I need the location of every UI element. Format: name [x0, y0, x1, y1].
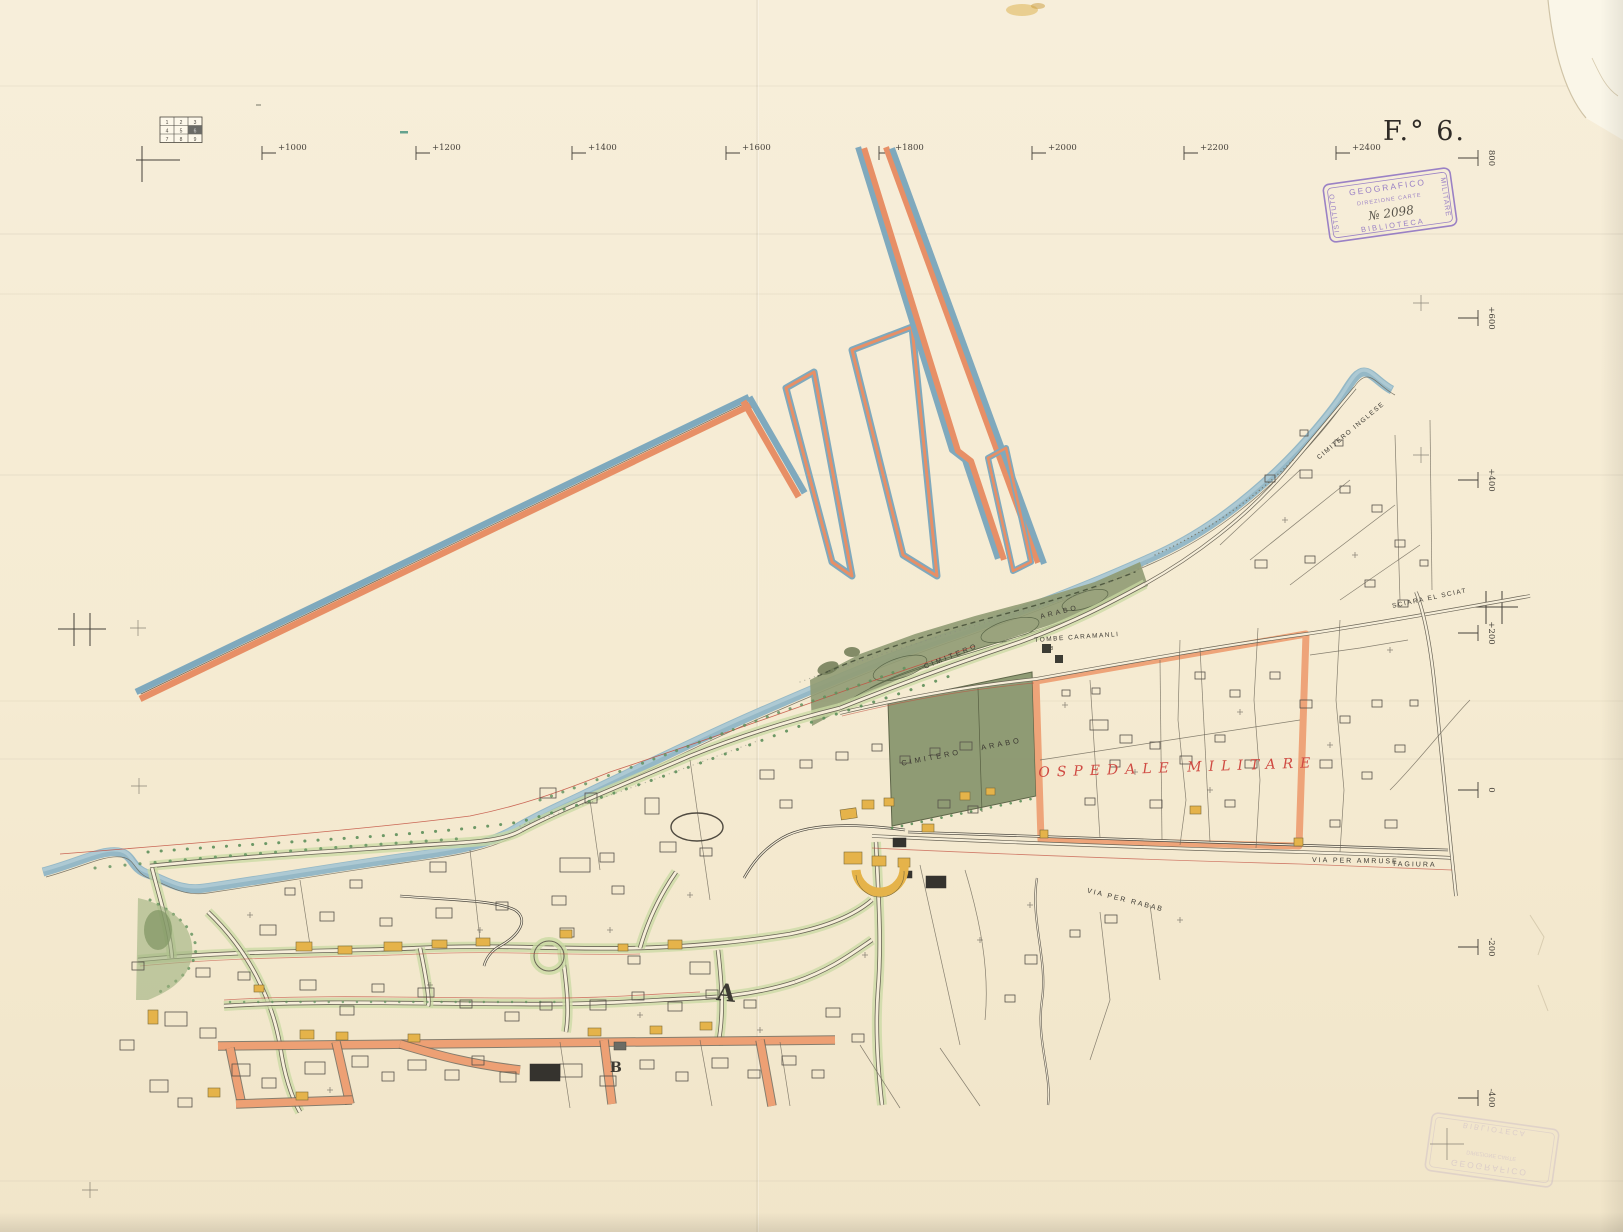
index-cell-highlighted: 6: [194, 129, 197, 135]
sheet-index-grid: 1 2 3 4 5 6 7 8 9: [160, 117, 202, 143]
map-canvas: +1000 +1200 +1400 +1600 +1800 +2000 +220…: [0, 0, 1623, 1232]
coord-label: +2400: [1352, 143, 1381, 153]
coord-label: +2000: [1048, 143, 1077, 153]
index-cell: 9: [194, 137, 197, 143]
coord-label: +400: [1486, 468, 1496, 491]
coord-label: 800: [1486, 150, 1496, 166]
coord-label: +1000: [278, 143, 307, 153]
coord-label: -200: [1486, 937, 1496, 956]
paper-speck: [400, 131, 408, 134]
coord-label: +2200: [1200, 143, 1229, 153]
index-cell: 2: [180, 120, 183, 126]
sheet-number: F.° 6.: [1383, 116, 1466, 147]
index-cell: 8: [180, 137, 183, 143]
label-tagiura: TAGIURA: [1392, 861, 1437, 869]
coord-label: +200: [1486, 621, 1496, 644]
coord-label: +1200: [432, 143, 461, 153]
label-section-b: B: [610, 1060, 622, 1076]
map-sheet: +1000 +1200 +1400 +1600 +1800 +2000 +220…: [0, 0, 1623, 1232]
tomb-building: [1055, 655, 1063, 663]
coord-label: +600: [1486, 306, 1496, 329]
index-cell: 3: [194, 120, 197, 126]
coord-label: +1400: [588, 143, 617, 153]
index-cell: 1: [166, 120, 169, 126]
index-cell: 7: [166, 137, 169, 143]
coord-label: +1800: [895, 143, 924, 153]
index-cell: 5: [180, 129, 183, 135]
coord-label: 0: [1486, 787, 1496, 792]
coord-label: -400: [1486, 1088, 1496, 1107]
index-cell: 4: [166, 129, 169, 135]
coord-label: +1600: [742, 143, 771, 153]
label-v18: V. 18: [1042, 646, 1053, 652]
label-section-a: A: [714, 977, 737, 1008]
